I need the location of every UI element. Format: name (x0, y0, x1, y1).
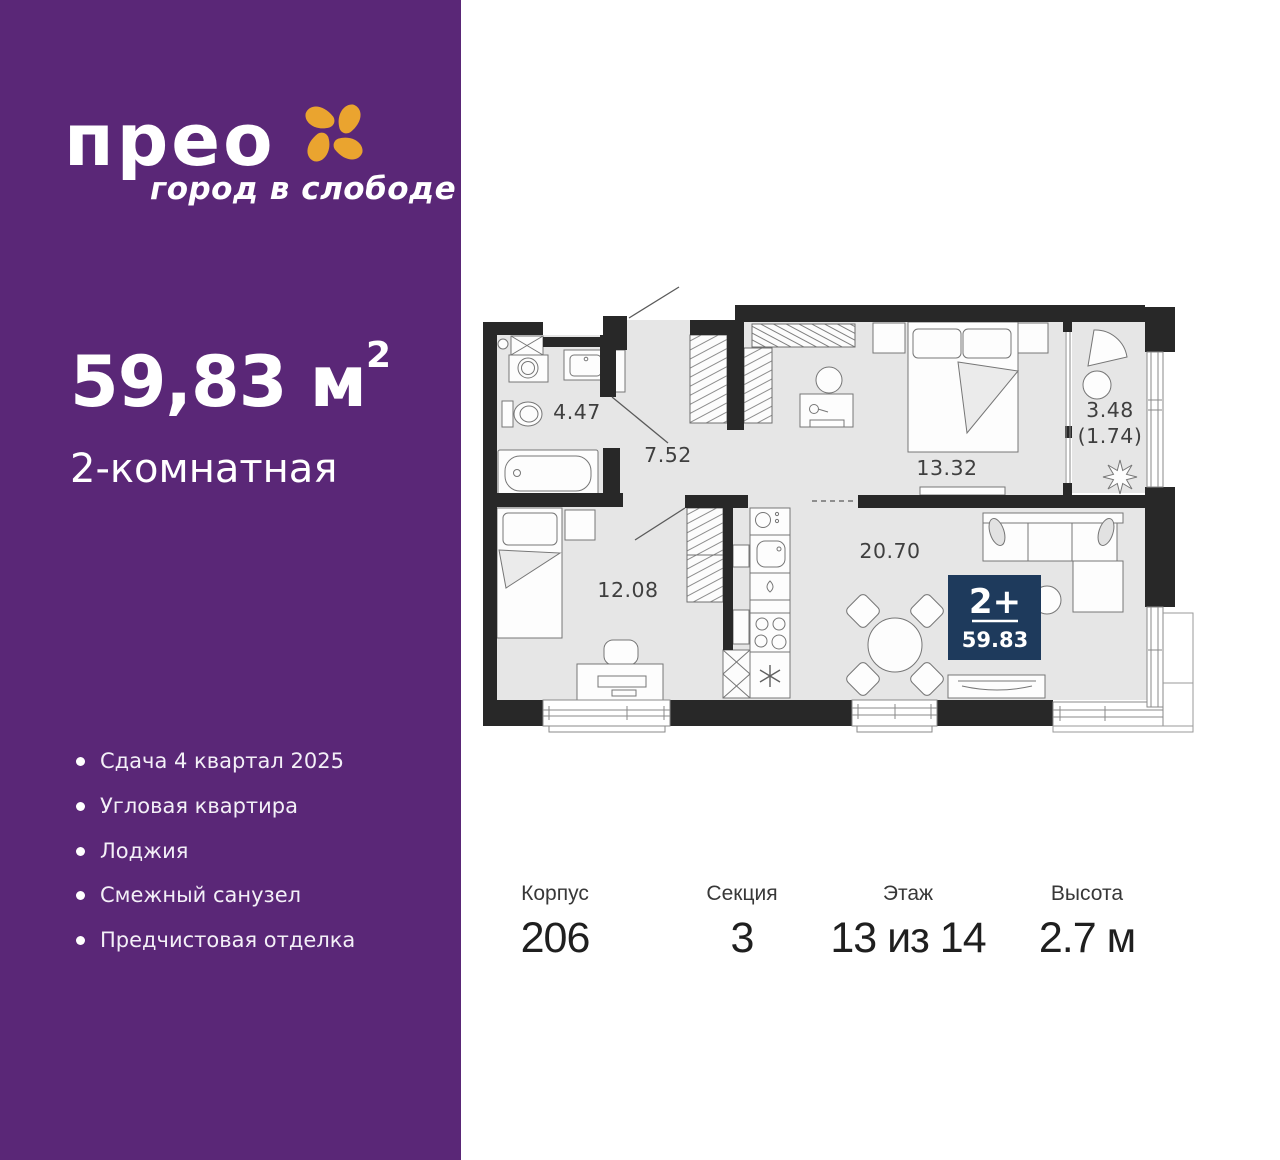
feature-item: Предчистовая отделка (76, 928, 355, 952)
room-area-label: 20.70 (859, 539, 920, 563)
entrance-door-swing (629, 287, 679, 318)
nightstand-icon (1018, 323, 1048, 353)
wardrobe-icon (744, 348, 772, 423)
toilet-icon (502, 401, 513, 427)
pillow-icon (503, 513, 557, 545)
dining-table-icon (868, 618, 922, 672)
bullet-icon (76, 802, 85, 811)
sofa-back (983, 513, 1123, 523)
plant-icon (1103, 460, 1137, 494)
loggia-glazing (1147, 352, 1163, 487)
feature-item: Лоджия (76, 839, 188, 863)
valve-icon (498, 339, 508, 349)
room-area-label: 13.32 (916, 456, 977, 480)
spec-korpus: Корпус 206 (521, 882, 590, 963)
bullet-icon (76, 757, 85, 766)
apartment-card: прео город в слободе 59,83 м2 2-комнатна… (0, 0, 1280, 1160)
pillow-icon (913, 329, 961, 358)
round-table-icon (1083, 371, 1111, 399)
apartment-type: 2-комнатная (70, 446, 337, 492)
apartment-badge: 2+ 59.83 (948, 575, 1041, 660)
living-glazing (1147, 607, 1163, 707)
badge-area: 59.83 (962, 628, 1028, 652)
room-area-label: 12.08 (597, 578, 658, 602)
room-area-label: 7.52 (644, 443, 692, 467)
nightstand-icon (873, 323, 905, 353)
console-icon (920, 487, 1005, 495)
chair-icon (604, 640, 638, 665)
clothes-rail-icon (752, 324, 855, 347)
room-area-label: 4.47 (553, 400, 601, 424)
flower-icon (296, 95, 372, 171)
feature-item: Угловая квартира (76, 794, 298, 818)
left-panel: прео город в слободе 59,83 м2 2-комнатна… (0, 0, 461, 1160)
wardrobe-icon (690, 335, 727, 423)
brand-logo: прео (64, 104, 276, 176)
column-icon (723, 650, 750, 698)
stool-icon (816, 367, 842, 393)
feature-item: Сдача 4 квартал 2025 (76, 749, 344, 773)
apartment-area: 59,83 м2 (70, 344, 390, 421)
floor-plan: 4.47 7.52 13.32 3.48 (1.74) 12.08 20.70 … (461, 280, 1201, 745)
window (543, 700, 670, 732)
room-area-label: (1.74) (1078, 424, 1143, 448)
bullet-icon (76, 891, 85, 900)
pillow-icon (963, 329, 1011, 358)
spec-floor: Этаж 13 из 14 (830, 882, 985, 963)
badge-rooms: 2+ (969, 582, 1021, 622)
room-area-label: 3.48 (1086, 398, 1134, 422)
bullet-icon (76, 936, 85, 945)
feature-item: Смежный санузел (76, 883, 301, 907)
sofa-chaise (1073, 561, 1123, 612)
spec-section: Секция 3 (706, 882, 777, 963)
nightstand-icon (565, 510, 595, 540)
spec-height: Высота 2.7 м (1039, 882, 1135, 963)
area-superscript: 2 (366, 335, 390, 376)
loggia-divider (1066, 332, 1070, 483)
bullet-icon (76, 847, 85, 856)
window (852, 700, 937, 732)
brand-tagline: город в слободе (150, 171, 456, 207)
